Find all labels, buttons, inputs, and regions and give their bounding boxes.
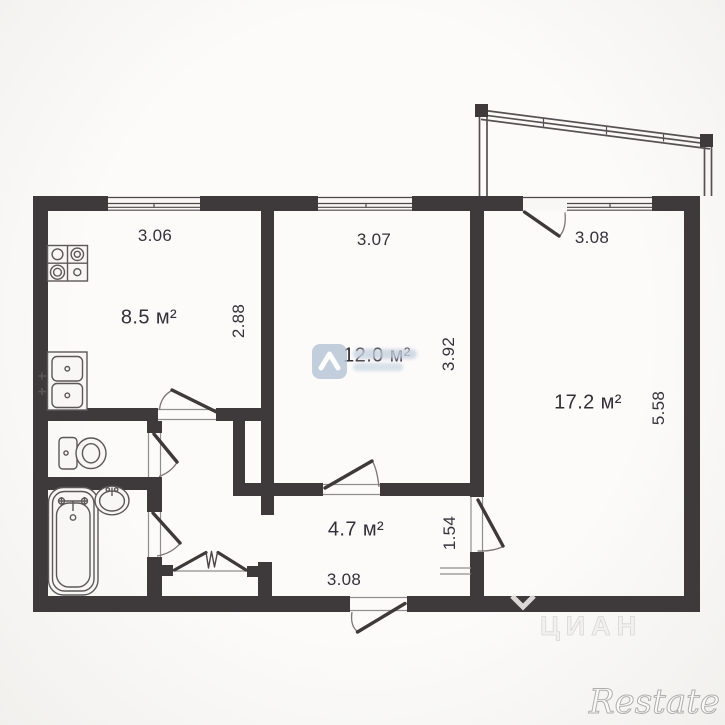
toilet-icon: [59, 438, 106, 470]
dim-living-depth: 3.92: [439, 337, 459, 371]
folding-door-icon: [175, 552, 247, 571]
dim-bedroom-width: 3.08: [575, 228, 609, 248]
window-living: [318, 197, 412, 211]
dim-kitchen-width: 3.06: [138, 226, 172, 246]
cian-watermark-text: ЦИАН: [540, 611, 642, 641]
door-arcs: [157, 391, 503, 632]
window-bedroom: [567, 197, 652, 211]
cian-chevron-icon: [512, 596, 534, 607]
bathtub-icon: [49, 488, 99, 596]
dim-bedroom-depth: 5.58: [649, 391, 669, 425]
interior-walls: [33, 211, 484, 597]
balcony-door: [523, 197, 567, 237]
dim-hall-width: 3.08: [327, 570, 361, 590]
dim-hall-depth: 1.54: [440, 516, 460, 550]
washbasin-icon: [95, 486, 129, 515]
agency-name-blur: [353, 349, 417, 359]
bedroom-door: [478, 500, 503, 546]
hallway-area-label: 4.7 м²: [328, 519, 384, 542]
bedroom-area-label: 17.2 м²: [554, 392, 622, 415]
balcony-railing-icon: [475, 104, 713, 196]
window-kitchen: [108, 197, 200, 211]
restate-watermark-text: Restate: [588, 682, 720, 722]
cian-watermark: ЦИАН: [500, 588, 675, 646]
wc-door: [154, 434, 177, 462]
kitchen-area-label: 8.5 м²: [121, 307, 177, 330]
alliance-logo-icon: [312, 344, 347, 379]
agency-subtitle-blur: [353, 363, 403, 371]
kitchen-door: [172, 390, 217, 412]
floorplan-image: 3.06 3.07 3.08 3.08 2.88 3.92 5.58 1.54 …: [0, 0, 725, 725]
door-leaves: [153, 390, 503, 632]
stove-icon: [48, 246, 88, 282]
entrance-door: [358, 604, 406, 633]
dim-kitchen-depth: 2.88: [229, 304, 249, 338]
door-openings: [149, 410, 483, 611]
restate-watermark: Restate: [586, 678, 725, 725]
bathroom-door: [153, 513, 180, 543]
dim-living-width: 3.07: [357, 230, 391, 250]
